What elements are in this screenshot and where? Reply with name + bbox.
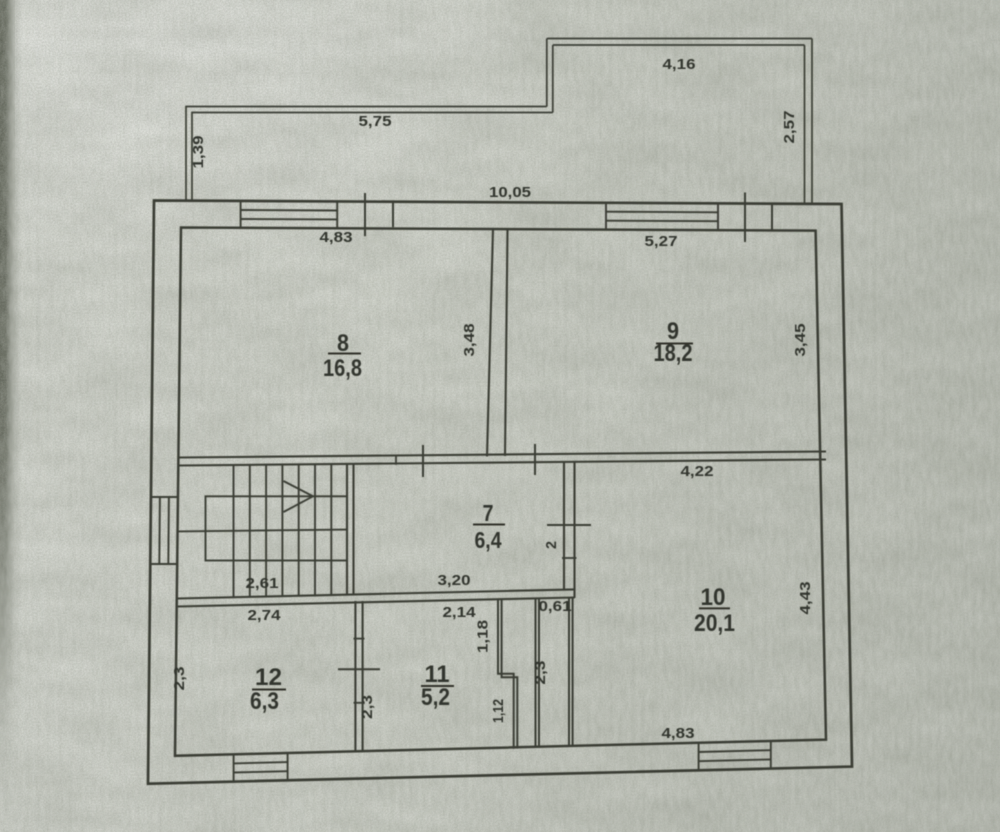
svg-text:0,61: 0,61 xyxy=(539,598,572,615)
svg-text:16,8: 16,8 xyxy=(323,355,362,382)
svg-text:3,20: 3,20 xyxy=(438,572,471,589)
svg-text:2,3: 2,3 xyxy=(532,661,549,685)
svg-text:2: 2 xyxy=(543,541,560,549)
svg-text:10,05: 10,05 xyxy=(489,184,531,201)
svg-text:10: 10 xyxy=(701,584,726,611)
svg-text:4,22: 4,22 xyxy=(681,463,714,480)
svg-text:2,74: 2,74 xyxy=(248,607,282,624)
svg-text:7: 7 xyxy=(483,500,494,526)
svg-text:2,3: 2,3 xyxy=(359,695,376,719)
svg-text:2,57: 2,57 xyxy=(781,111,798,144)
svg-text:2,14: 2,14 xyxy=(443,604,477,621)
svg-text:4,16: 4,16 xyxy=(663,56,696,73)
svg-text:18,2: 18,2 xyxy=(654,340,693,367)
svg-text:3,45: 3,45 xyxy=(792,324,809,357)
svg-text:5,27: 5,27 xyxy=(645,233,678,250)
svg-text:4,83: 4,83 xyxy=(320,229,353,246)
svg-text:5,75: 5,75 xyxy=(359,113,392,130)
svg-text:4,43: 4,43 xyxy=(797,582,814,615)
svg-text:6,4: 6,4 xyxy=(475,527,502,553)
svg-text:3,48: 3,48 xyxy=(461,324,478,357)
svg-text:1,18: 1,18 xyxy=(475,620,492,653)
svg-text:1,12: 1,12 xyxy=(490,699,507,723)
svg-text:20,1: 20,1 xyxy=(694,610,735,637)
svg-text:1,39: 1,39 xyxy=(190,136,207,169)
svg-text:4,83: 4,83 xyxy=(662,725,695,742)
svg-text:2,3: 2,3 xyxy=(171,667,188,691)
svg-text:5,2: 5,2 xyxy=(421,684,450,711)
svg-text:12: 12 xyxy=(255,664,282,691)
svg-text:6,3: 6,3 xyxy=(250,688,279,715)
svg-text:2,61: 2,61 xyxy=(246,575,279,592)
